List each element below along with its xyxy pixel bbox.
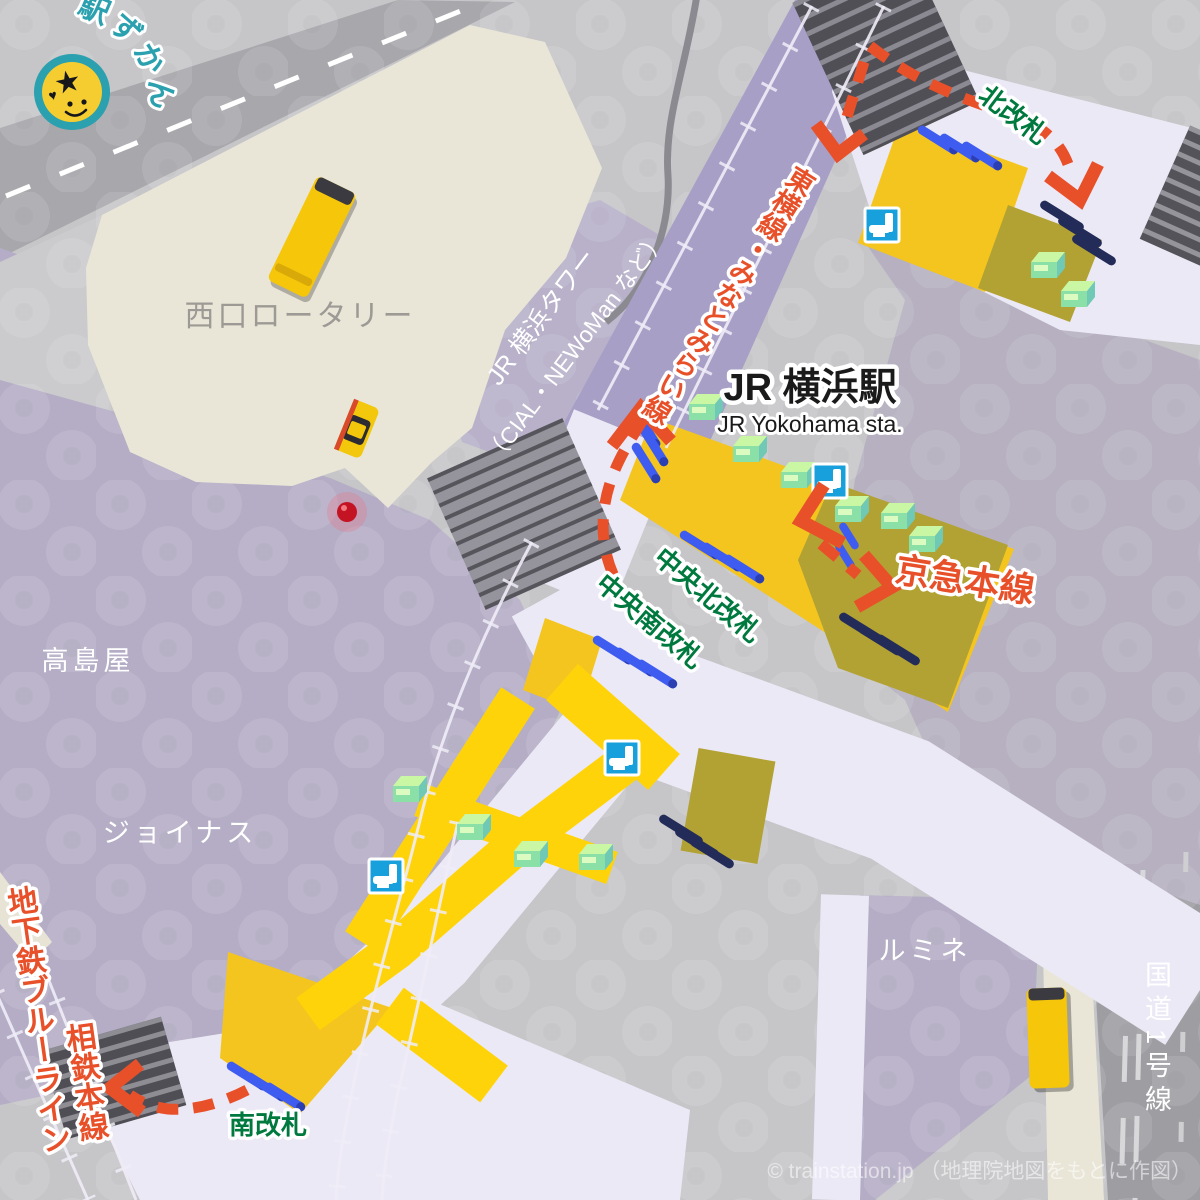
label-takashimaya: 高島屋	[42, 646, 135, 676]
toilet-icon	[865, 208, 899, 242]
ticket-machine-icon	[457, 814, 491, 840]
ticket-machine-icon	[781, 462, 815, 488]
ticket-machine-icon	[733, 436, 767, 462]
ticket-machine-icon	[1031, 252, 1065, 278]
label-lumine: ルミネ	[879, 936, 972, 966]
ticket-machine-icon	[909, 526, 943, 552]
ticket-machine-icon	[393, 776, 427, 802]
logo-eye	[67, 101, 72, 106]
label-gate-south: 南改札	[229, 1110, 307, 1140]
toilet-icon	[605, 741, 639, 775]
toilet-icon	[369, 859, 403, 893]
label-west-rotary: 西口ロータリー	[185, 300, 416, 333]
station-map: 西口ロータリー 高島屋 ジョイナス ルミネ JR 横浜タワー （CIAL・NEW…	[0, 0, 1200, 1200]
station-title-en: JR Yokohama sta.	[717, 411, 902, 437]
bus-icon-route1	[1026, 987, 1074, 1092]
ticket-machine-icon	[1061, 281, 1095, 307]
ticket-machine-icon	[835, 496, 869, 522]
logo-eye	[81, 99, 86, 104]
signal-light-icon	[327, 492, 367, 532]
label-route1: 国道1号線	[1141, 961, 1172, 1119]
ticket-machine-icon	[514, 841, 548, 867]
ticket-machine-icon	[881, 503, 915, 529]
station-title-ja: JR 横浜駅	[723, 367, 896, 409]
copyright-credit: © trainstation.jp （地理院地図をもとに作図）	[767, 1160, 1192, 1183]
ticket-machine-icon	[579, 844, 613, 870]
label-joinus: ジョイナス	[103, 818, 257, 848]
walkway-lumine-west	[836, 895, 845, 1200]
